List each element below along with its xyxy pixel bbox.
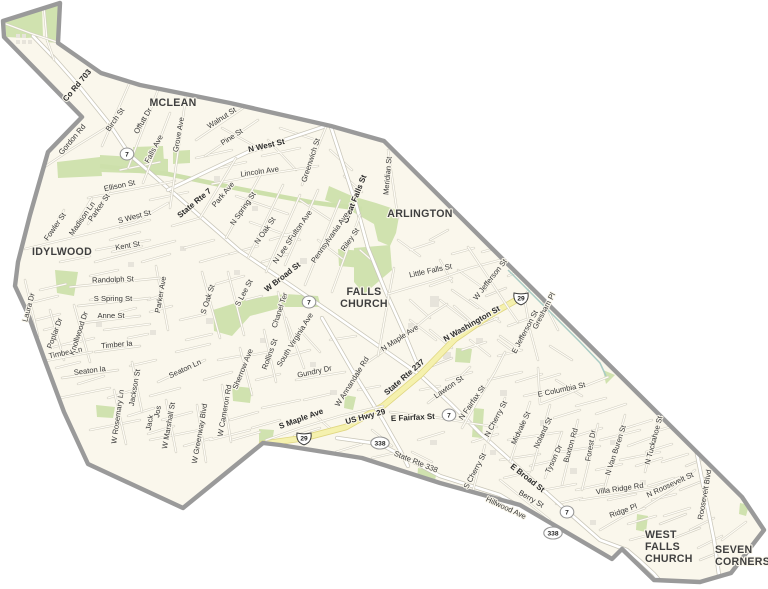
svg-text:338: 338 [547, 530, 558, 537]
svg-text:29: 29 [300, 436, 308, 443]
svg-text:7: 7 [125, 151, 129, 158]
svg-text:WEST: WEST [645, 529, 677, 541]
svg-text:IDYLWOOD: IDYLWOOD [32, 246, 92, 258]
svg-text:MCLEAN: MCLEAN [149, 97, 196, 109]
svg-text:Anne St: Anne St [97, 311, 125, 320]
svg-text:FALLS: FALLS [346, 286, 381, 298]
svg-text:7: 7 [447, 412, 451, 419]
svg-text:7: 7 [565, 509, 569, 516]
svg-text:FALLS: FALLS [645, 541, 680, 553]
svg-text:CHURCH: CHURCH [645, 553, 693, 565]
svg-text:CORNERS: CORNERS [715, 556, 768, 568]
svg-text:S Spring St: S Spring St [94, 294, 133, 303]
svg-text:29: 29 [517, 296, 525, 303]
svg-text:CHURCH: CHURCH [340, 298, 388, 310]
svg-text:SEVEN: SEVEN [715, 544, 752, 556]
svg-text:7: 7 [307, 299, 311, 306]
svg-text:338: 338 [374, 440, 385, 447]
svg-text:ARLINGTON: ARLINGTON [387, 208, 452, 220]
svg-text:Randolph St: Randolph St [92, 274, 135, 284]
